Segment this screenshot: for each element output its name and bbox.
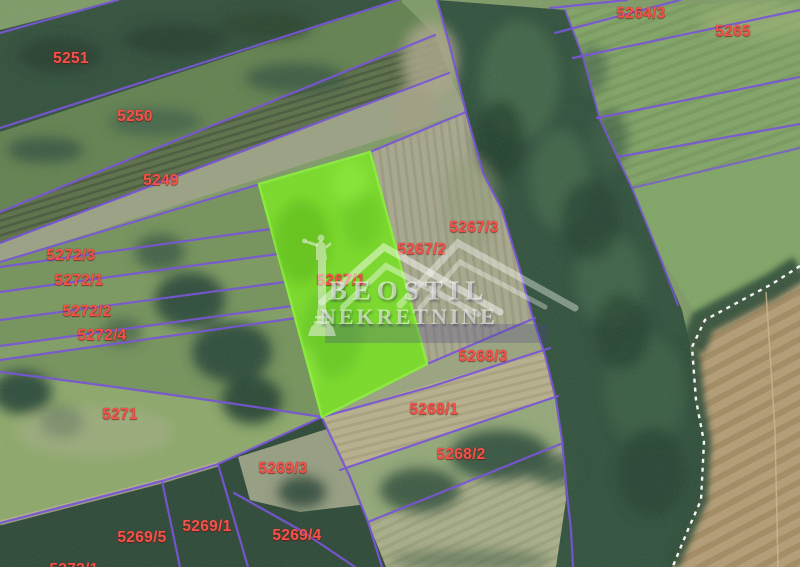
- aerial-imagery-layer: [0, 0, 800, 567]
- map-canvas[interactable]: 5251525052495272/35272/15272/25272/45271…: [0, 0, 800, 567]
